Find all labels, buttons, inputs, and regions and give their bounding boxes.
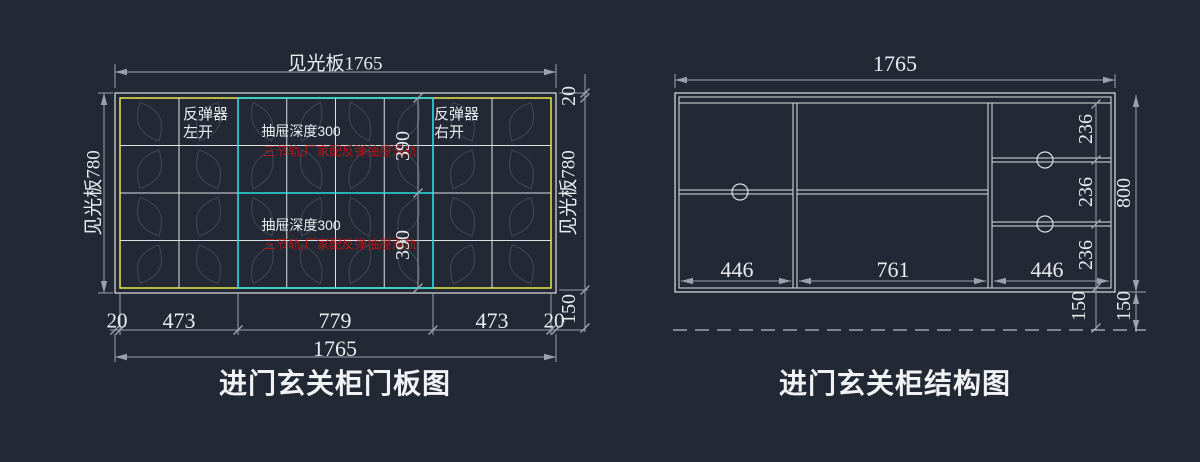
right-top-dim: 1765 xyxy=(873,53,917,75)
left-bottom-dim-20a: 20 xyxy=(107,311,128,332)
right-shelf-dim-3: 236 xyxy=(1076,240,1096,270)
right-diagram-title: 进门玄关柜结构图 xyxy=(779,370,1011,398)
right-inner-floor-dim: 150 xyxy=(1069,291,1089,321)
drawer-height-upper: 390 xyxy=(393,131,413,161)
drawer-depth-lower: 抽屉深度300 xyxy=(261,215,340,235)
drawer-depth-upper: 抽屉深度300 xyxy=(261,121,340,141)
left-right-dim-20: 20 xyxy=(559,86,579,106)
rebound-right-line1: 反弹器 xyxy=(434,106,479,124)
left-total-dim: 1765 xyxy=(313,338,357,360)
right-floor-gap-dim: 150 xyxy=(1114,291,1134,321)
right-col-dim-446a: 446 xyxy=(721,259,754,281)
rebound-right-label: 反弹器 右开 xyxy=(434,106,479,142)
rebound-left-line2: 左开 xyxy=(183,124,228,142)
left-right-dim-780: 见光板780 xyxy=(560,150,579,236)
right-shelf-dim-2: 236 xyxy=(1076,177,1096,207)
cad-canvas: 见光板1765 见光板780 20 见光板780 150 20 473 779 … xyxy=(0,0,1200,462)
left-side-dim: 见光板780 xyxy=(85,150,104,236)
left-bottom-dim-473b: 473 xyxy=(476,310,509,332)
left-bottom-dim-779: 779 xyxy=(319,310,352,332)
right-col-dim-446b: 446 xyxy=(1031,259,1064,281)
right-shelf-dim-1: 236 xyxy=(1076,114,1096,144)
right-col-dim-761: 761 xyxy=(877,259,910,281)
rebound-left-line1: 反弹器 xyxy=(183,106,228,124)
left-bottom-dim-20b: 20 xyxy=(544,311,565,332)
right-height-dim: 800 xyxy=(1114,178,1134,208)
drawing-layer xyxy=(0,0,1200,462)
left-bottom-dim-473a: 473 xyxy=(163,310,196,332)
left-top-dim: 见光板1765 xyxy=(287,55,382,74)
rebound-left-label: 反弹器 左开 xyxy=(183,106,228,142)
left-diagram-title: 进门玄关柜门板图 xyxy=(219,370,451,398)
drawer-height-lower: 390 xyxy=(393,230,413,260)
rebound-right-line2: 右开 xyxy=(434,124,479,142)
